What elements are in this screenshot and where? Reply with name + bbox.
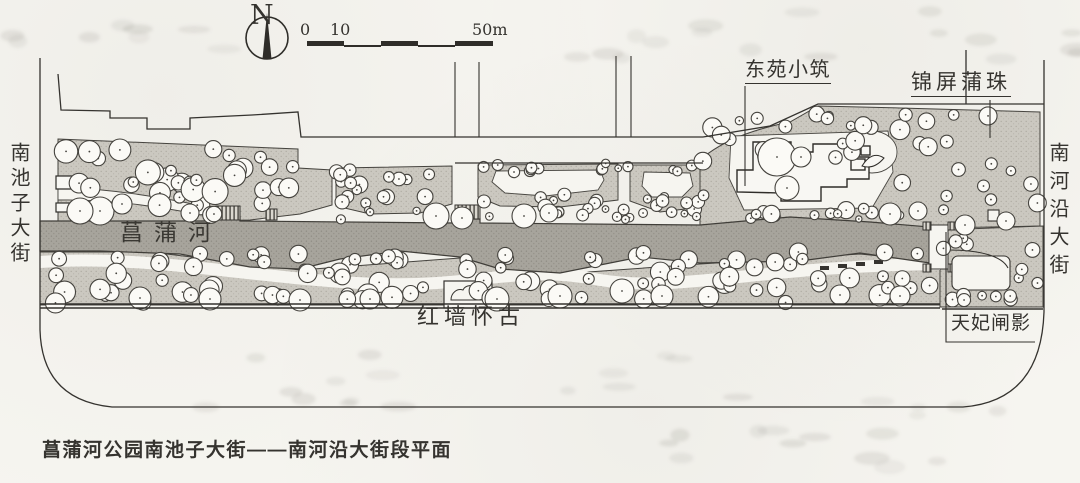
scale-tick-0: 0 [300, 22, 310, 39]
parcel-lines [455, 56, 631, 137]
label-hongqiang-huaigu: 红墙怀古 [417, 305, 525, 328]
scale-tick-50m: 50m [472, 22, 508, 39]
north-label: N [250, 2, 274, 30]
label-street-nanheyan: 南河沿大街 [1046, 142, 1067, 282]
scale-tick-10: 10 [330, 22, 350, 39]
label-jinping-puzhu: 锦屏蒲珠 [911, 72, 1011, 97]
label-tianfei-zhaying: 天妃闸影 [951, 314, 1031, 334]
label-dongyuan-pavilion: 东苑小筑 [745, 60, 831, 84]
label-street-nanchizi: 南池子大街 [7, 142, 28, 267]
label-changpu-river: 菖蒲河 [120, 220, 222, 244]
north-building-boundary [58, 74, 703, 137]
scanned-plan-page: N 0 10 50m 东苑小筑 锦屏蒲珠 菖蒲河 红墙怀古 天妃闸影 南池子大街… [0, 0, 1080, 483]
figure-caption: 菖蒲河公园南池子大街——南河沿大街段平面 [42, 441, 452, 461]
scale-bar [307, 41, 493, 47]
